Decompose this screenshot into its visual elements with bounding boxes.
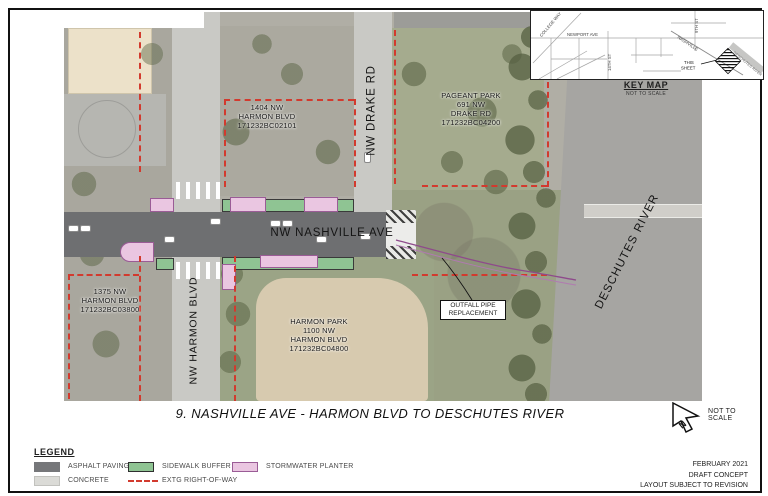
sheet-revision-note: LAYOUT SUBJECT TO REVISION	[640, 481, 748, 492]
car	[282, 220, 293, 227]
parcel-label-line: 171232BC02101	[212, 122, 322, 131]
parcel-label-line: 171232BC04800	[264, 345, 374, 354]
car	[68, 225, 79, 232]
outfall-label-line: OUTFALL PIPE	[441, 302, 505, 310]
harmon-park-label: HARMON PARK 1100 NW HARMON BLVD 171232BC…	[264, 318, 374, 353]
street-label-drake: NW DRAKE RD	[366, 61, 381, 161]
street-label-nashville: NW NASHVILLE AVE	[237, 227, 427, 239]
sheet-title: 9. NASHVILLE AVE - HARMON BLVD TO DESCHU…	[130, 406, 610, 421]
title-block-notes: FEBRUARY 2021 DRAFT CONCEPT LAYOUT SUBJE…	[640, 460, 748, 492]
parcel-label-1375: 1375 NW HARMON BLVD 171232BC03800	[66, 288, 154, 315]
parcel-label-line: 171232BC04200	[416, 119, 526, 128]
key-map-street-label: NASHVILLE	[676, 35, 699, 52]
legend-label-concrete: CONCRETE	[68, 477, 109, 484]
car	[270, 220, 281, 227]
sheet-white-notch	[64, 12, 204, 28]
legend-swatch-row-dash	[128, 480, 158, 482]
parcel-label-1404: 1404 NW HARMON BLVD 171232BC02101	[212, 104, 322, 131]
car	[210, 218, 221, 225]
key-map-street-label: 14TH ST	[607, 53, 612, 71]
pageant-park-label: PAGEANT PARK 691 NW DRAKE RD 171232BC042…	[416, 92, 526, 127]
this-sheet-label-1: THIS	[684, 60, 694, 65]
key-map-scale-note: NOT TO SCALE	[530, 91, 762, 97]
north-arrow-icon: N	[670, 402, 704, 436]
sheet-date: FEBRUARY 2021	[640, 460, 748, 471]
sheet-border: 1404 NW HARMON BLVD 171232BC02101 PAGEAN…	[8, 8, 762, 493]
key-map-box: NEWPORT AVE COLLEGE WAY 14TH ST 9TH ST N…	[530, 10, 764, 80]
legend-swatch-buffer	[128, 462, 154, 472]
key-map-street-label: COLLEGE WAY	[539, 11, 563, 38]
legend-swatch-planter	[232, 462, 258, 472]
outfall-label-box: OUTFALL PIPE REPLACEMENT	[440, 300, 506, 320]
legend-label-asphalt: ASPHALT PAVING	[68, 463, 129, 470]
outfall-pipe-line-1	[396, 240, 576, 280]
legend-swatch-asphalt	[34, 462, 60, 472]
car	[80, 225, 91, 232]
not-to-scale-note: NOT TO SCALE	[708, 408, 760, 422]
key-map-title: KEY MAP	[530, 80, 762, 90]
parcel-label-line: 171232BC03800	[66, 306, 154, 315]
outfall-label-line: REPLACEMENT	[441, 310, 505, 318]
legend-label-buffer: SIDEWALK BUFFER	[162, 463, 231, 470]
this-sheet-leader	[701, 60, 717, 64]
legend-label-planter: STORMWATER PLANTER	[266, 463, 353, 470]
key-map-street-label: NEWPORT AVE	[567, 32, 598, 37]
sheet-status: DRAFT CONCEPT	[640, 471, 748, 482]
legend-swatch-concrete	[34, 476, 60, 486]
car	[164, 236, 175, 243]
outfall-pipe-line-2	[396, 245, 576, 285]
key-map-svg: NEWPORT AVE COLLEGE WAY 14TH ST 9TH ST N…	[531, 11, 763, 79]
this-sheet-label-2: SHEET	[681, 66, 696, 71]
street-label-harmon: NW HARMON BLVD	[188, 285, 203, 385]
legend-title: LEGEND	[34, 447, 75, 457]
key-map-street-label: 9TH ST	[694, 18, 699, 33]
outfall-label-leader	[442, 258, 472, 300]
legend-label-row: EXTG RIGHT-OF-WAY	[162, 477, 237, 484]
